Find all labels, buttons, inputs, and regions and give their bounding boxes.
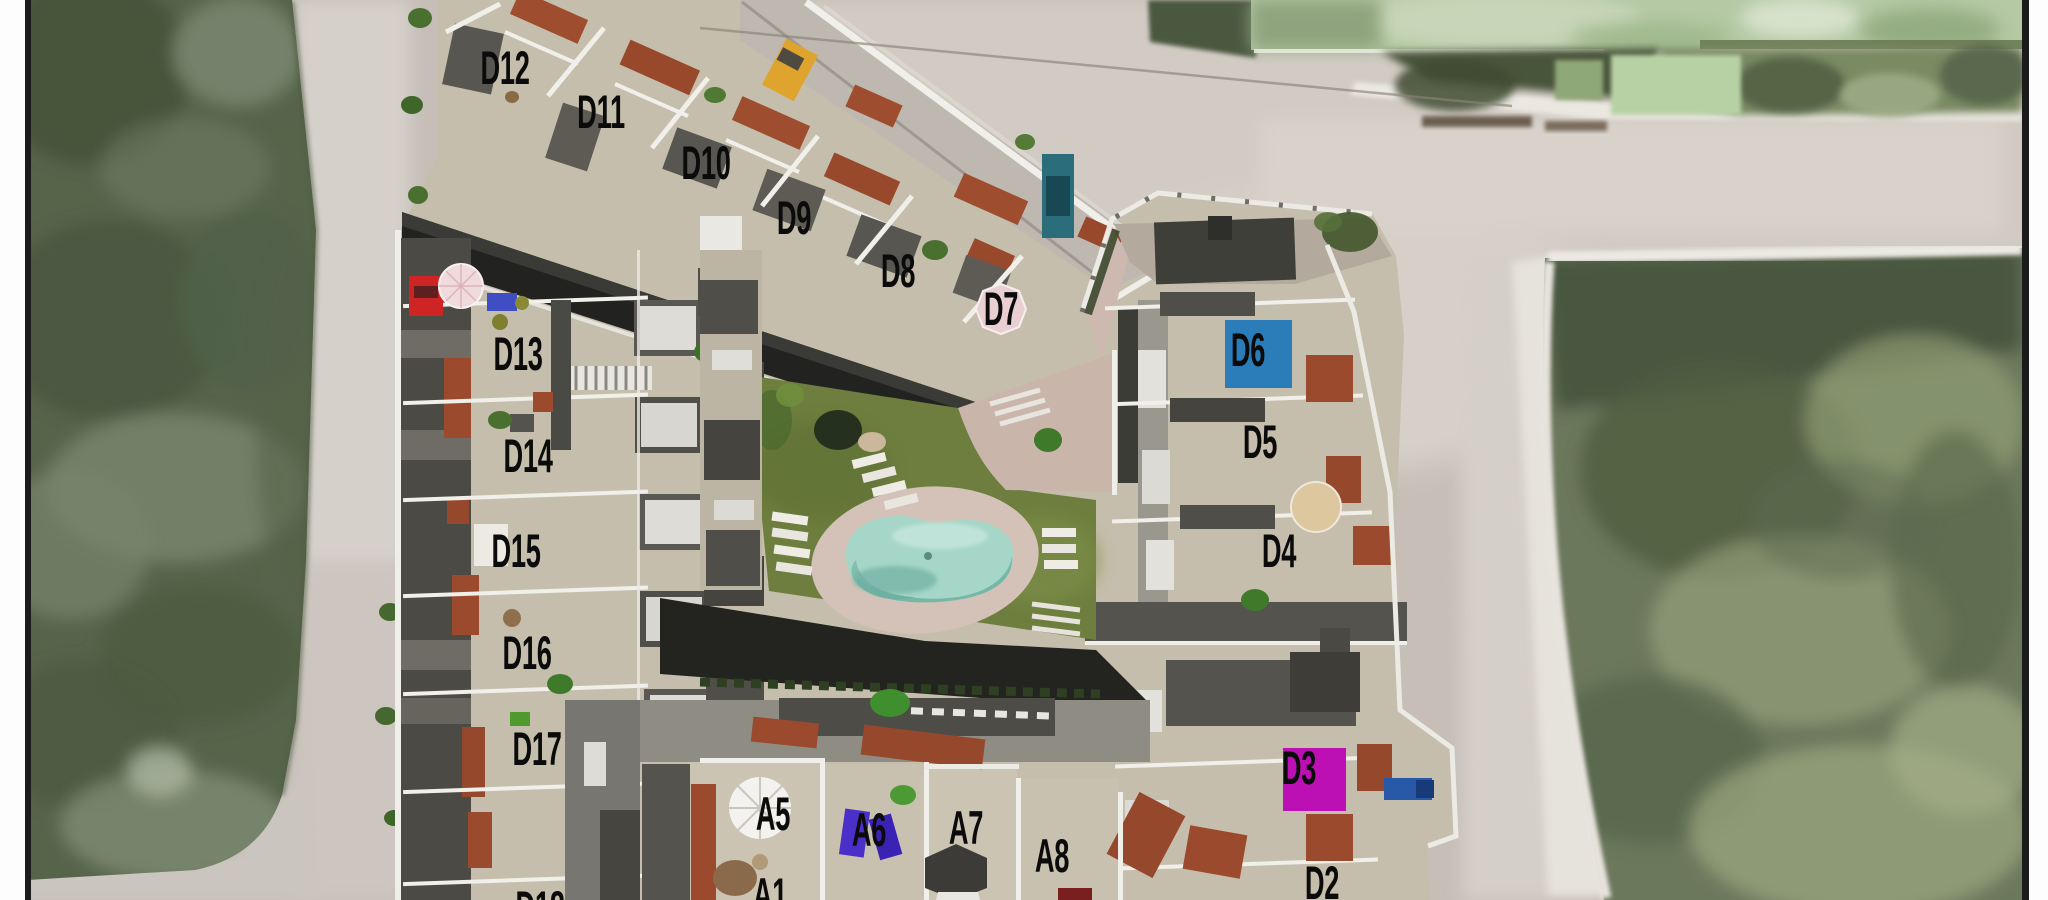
svg-text:D2: D2 — [1305, 857, 1339, 900]
svg-text:D7: D7 — [984, 283, 1018, 336]
svg-text:D11: D11 — [577, 86, 625, 139]
svg-text:A1: A1 — [753, 869, 787, 900]
svg-text:D10: D10 — [681, 137, 730, 190]
svg-text:D4: D4 — [1262, 525, 1297, 578]
svg-text:A8: A8 — [1035, 830, 1069, 883]
svg-text:D9: D9 — [777, 192, 811, 245]
svg-text:D18: D18 — [515, 882, 564, 900]
svg-text:D8: D8 — [881, 245, 915, 298]
svg-text:A6: A6 — [852, 804, 886, 857]
svg-text:D15: D15 — [491, 525, 540, 578]
svg-text:D13: D13 — [493, 328, 542, 381]
svg-text:A5: A5 — [756, 788, 790, 841]
svg-text:D17: D17 — [512, 723, 561, 776]
svg-text:D16: D16 — [502, 627, 551, 680]
svg-text:D14: D14 — [503, 430, 553, 483]
svg-text:D5: D5 — [1243, 416, 1277, 469]
svg-text:A7: A7 — [949, 802, 983, 855]
svg-text:D12: D12 — [480, 42, 529, 95]
svg-text:D3: D3 — [1282, 742, 1316, 795]
svg-text:D6: D6 — [1231, 324, 1265, 377]
